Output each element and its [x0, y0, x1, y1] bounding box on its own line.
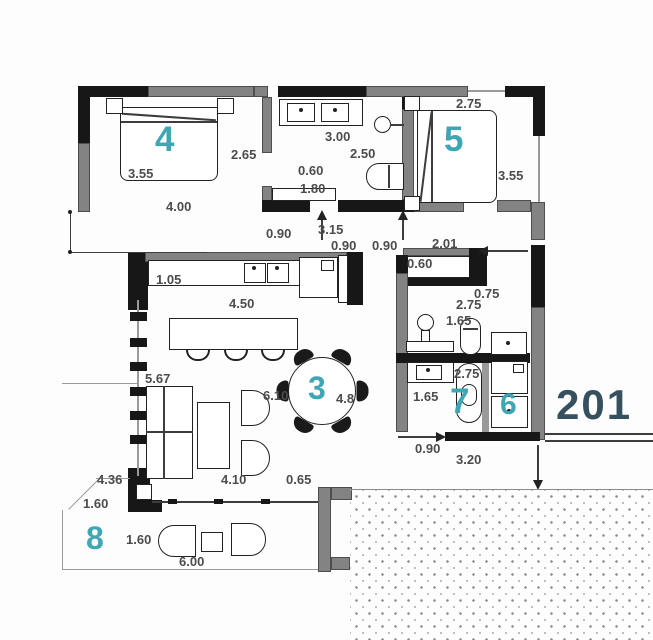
nightstand-icon: [404, 96, 420, 111]
dimension-label: 0.90: [372, 238, 397, 253]
dimension-label: 1.05: [156, 272, 181, 287]
sofa-cushion-line: [146, 431, 193, 433]
toilet-line: [463, 328, 478, 330]
dimension-label: 3.55: [498, 168, 523, 183]
mullion-icon: [130, 338, 147, 347]
wall-segment: [278, 86, 366, 97]
sofa-icon: [146, 386, 193, 479]
tall-cabinet-icon: [338, 255, 348, 303]
leader-line: [545, 440, 653, 442]
wall-segment: [78, 143, 90, 212]
planter-icon: [136, 484, 152, 500]
dimension-label: 3.00: [325, 129, 350, 144]
bar-stool-icon: [261, 350, 285, 361]
door-arrow-up-icon: [398, 210, 408, 220]
mullion-icon: [130, 312, 147, 321]
wall-segment: [331, 487, 352, 500]
room-number-6: 6: [500, 390, 517, 420]
window-line: [468, 90, 505, 92]
dimension-label: 2.50: [350, 146, 375, 161]
wall-segment: [533, 97, 545, 136]
washbasin-icon: [321, 103, 349, 122]
room-number-7: 7: [450, 384, 469, 419]
door-arrow-up-icon: [317, 210, 327, 220]
washbasin-icon: [287, 103, 315, 122]
dimension-label: 0.90: [415, 441, 440, 456]
coffee-table-icon: [197, 402, 230, 469]
terrace-chair-icon: [158, 525, 196, 557]
wall-segment: [505, 86, 545, 97]
sink-tap-dot: [252, 266, 256, 270]
dimension-label: 0.90: [266, 226, 291, 241]
leader-line: [62, 383, 137, 384]
wall-segment: [318, 487, 331, 572]
kitchen-island-icon: [169, 318, 298, 350]
toilet-icon: [374, 116, 391, 133]
washer-detail: [513, 364, 524, 373]
dimension-label: 3.55: [128, 166, 153, 181]
door-arrow-stem: [488, 250, 528, 252]
partition-line: [482, 363, 489, 432]
wall-segment: [254, 86, 268, 97]
wc-counter-icon: [406, 341, 454, 352]
door-tick: [261, 499, 270, 504]
dimension-label: 1.60: [83, 496, 108, 511]
room-number-3: 3: [308, 372, 326, 404]
dimension-label: 0.65: [286, 472, 311, 487]
wall-segment: [78, 97, 90, 143]
fridge-detail: [321, 260, 334, 271]
wall-segment: [347, 252, 363, 305]
mullion-icon: [130, 435, 147, 444]
dimension-label: 4.00: [166, 199, 191, 214]
wall-segment: [262, 97, 272, 153]
mullion-icon: [130, 387, 147, 396]
mullion-icon: [130, 411, 147, 420]
nightstand-icon: [404, 196, 420, 211]
dimension-node: [68, 250, 72, 254]
basin-tap-dot: [333, 108, 337, 112]
dimension-label: 2.75: [454, 366, 479, 381]
dimension-label: 4.50: [229, 296, 254, 311]
dimension-node: [68, 210, 72, 214]
dimension-label: 0.60: [407, 256, 432, 271]
bar-stool-icon: [186, 350, 210, 361]
dimension-label: 2.75: [456, 96, 481, 111]
room-number-4: 4: [155, 122, 174, 157]
dimension-label: 3.20: [456, 452, 481, 467]
dimension-label: 1.65: [413, 389, 438, 404]
wall-segment: [445, 432, 540, 441]
entry-arrow-stem: [537, 445, 539, 483]
apartment-number: 201: [556, 384, 632, 426]
washbasin-icon: [416, 365, 442, 380]
wall-segment: [531, 307, 545, 440]
dimension-label: 4.8: [336, 391, 354, 406]
terrace-table-icon: [201, 532, 223, 552]
dimension-label: 4.10: [221, 472, 246, 487]
washer-dot: [506, 341, 510, 345]
door-tick: [168, 499, 177, 504]
wall-segment: [331, 557, 350, 570]
door-arrow-left-icon: [478, 246, 488, 256]
dining-chair-icon: [357, 381, 369, 402]
room-number-8: 8: [86, 522, 104, 554]
dimension-label: 1.80: [300, 181, 325, 196]
wall-segment: [403, 278, 487, 286]
wall-segment: [497, 200, 531, 212]
terrace-chair-icon: [231, 523, 266, 556]
dimension-label: 6.10: [263, 388, 288, 403]
dimension-line: [70, 212, 71, 253]
dimension-label: 5.67: [145, 371, 170, 386]
dimension-label: 0.90: [331, 238, 356, 253]
leader-line: [545, 433, 653, 435]
terrace-outline: [62, 510, 63, 570]
window-line: [538, 136, 540, 202]
ground-hatch: [350, 489, 653, 640]
bathtub-line: [388, 165, 390, 188]
sink-tap-dot: [275, 266, 279, 270]
dimension-label: 2.75: [456, 297, 481, 312]
pedestal-basin-icon: [417, 314, 434, 331]
basin-tap-dot: [299, 108, 303, 112]
basin-tap-dot: [426, 368, 430, 372]
dimension-label: 1.60: [126, 532, 151, 547]
wall-segment: [531, 245, 545, 307]
wall-segment: [531, 202, 545, 240]
toilet-connector-line: [390, 124, 404, 126]
wall-segment: [148, 86, 254, 97]
dimension-label: 6.00: [179, 554, 204, 569]
mullion-icon: [130, 362, 147, 371]
door-arrow-stem: [398, 436, 438, 438]
dimension-label: 2.01: [432, 236, 457, 251]
dimension-line: [70, 252, 207, 253]
sofa-back-line: [163, 386, 165, 479]
bathtub-icon: [366, 163, 404, 190]
door-tick: [214, 499, 223, 504]
wall-segment: [262, 200, 310, 212]
dimension-label: 1.65: [446, 313, 471, 328]
dimension-label: 0.60: [298, 163, 323, 178]
terrace-outline: [62, 569, 318, 570]
dimension-label: 2.65: [231, 147, 256, 162]
dimension-label: 4.36: [97, 472, 122, 487]
dimension-label: 3.15: [318, 222, 343, 237]
wall-segment: [78, 86, 148, 97]
nightstand-icon: [217, 98, 234, 114]
room-number-5: 5: [444, 122, 463, 157]
bar-stool-icon: [224, 350, 248, 361]
floor-plan: 3.55 4.00 2.65 3.00 2.50 0.60 1.80 2.75 …: [0, 0, 653, 640]
armchair-icon: [241, 440, 270, 476]
bed-pillow-line: [431, 111, 433, 202]
nightstand-icon: [106, 98, 123, 114]
door-arrow-stem: [402, 218, 404, 240]
